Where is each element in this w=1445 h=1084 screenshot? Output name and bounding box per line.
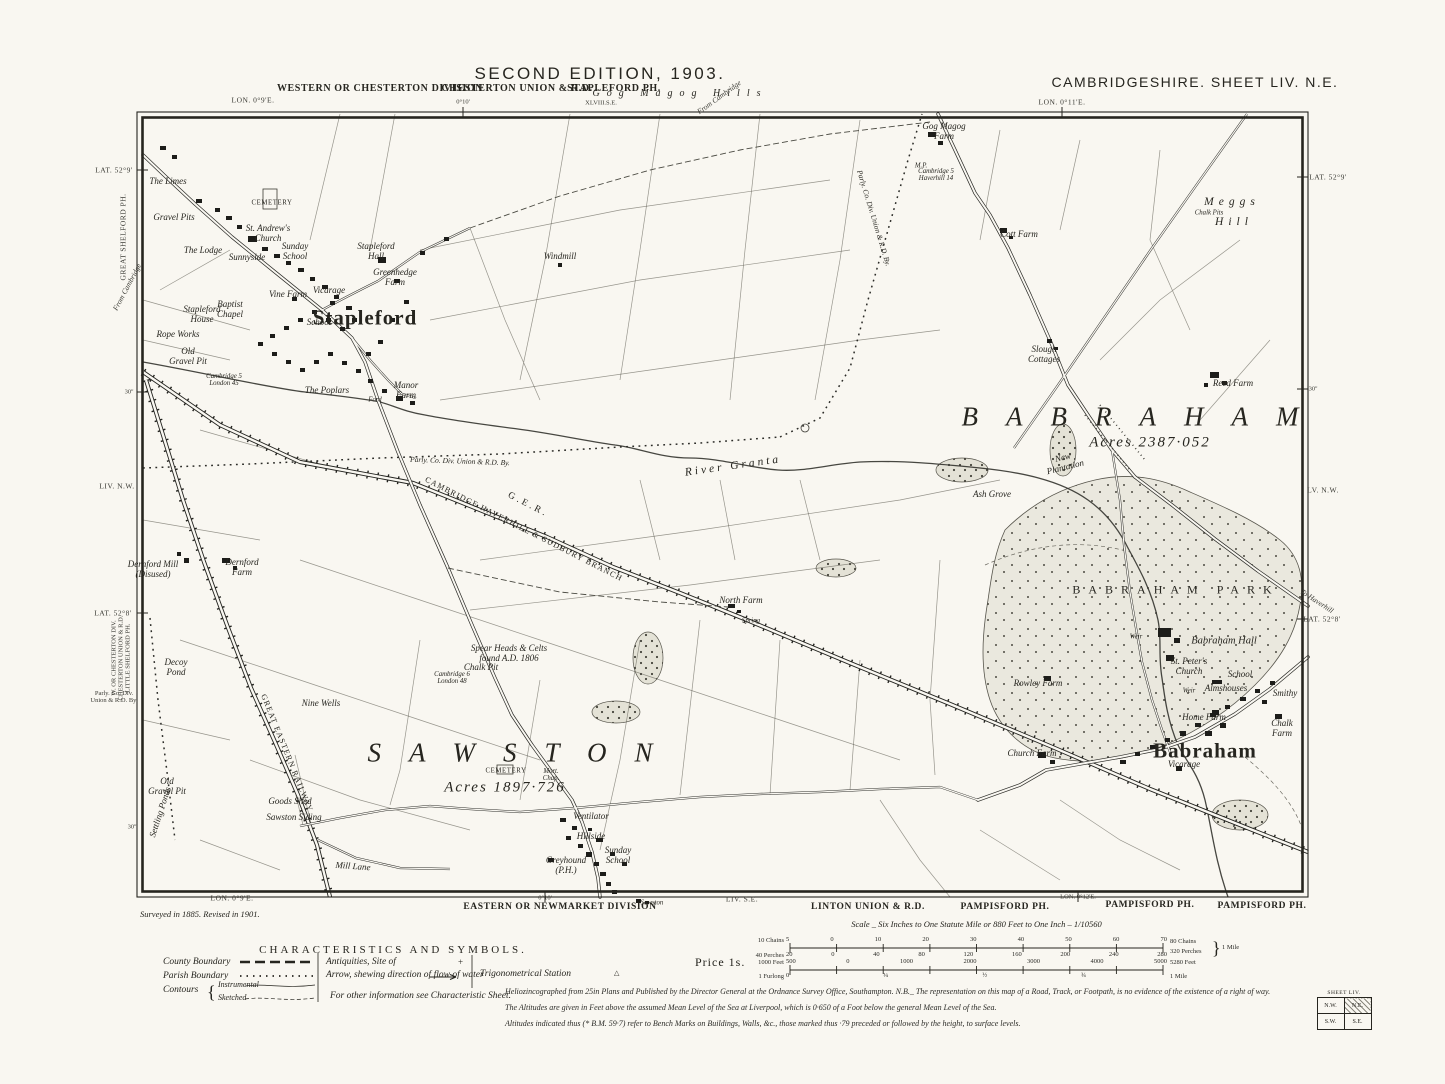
legend-title: CHARACTERISTICS AND SYMBOLS.: [259, 944, 527, 956]
scale-furlong-label: 1 Furlong: [700, 973, 784, 980]
scale-number: 120: [964, 951, 974, 958]
cemetery-plot: [263, 189, 277, 209]
scale-number: 5000: [1154, 958, 1167, 965]
cemetery-plot: [497, 765, 513, 774]
map-canvas: [0, 0, 1445, 1084]
legend-arrow: Arrow, shewing direction of flow of wate…: [326, 970, 484, 980]
imprint-line2: The Altitudes are given in Feet above th…: [505, 1000, 1323, 1016]
scale-furlong-numbers: 0¼½¾: [786, 972, 1086, 979]
index-sw: S.W.: [1317, 1014, 1344, 1030]
scale-number: 60: [1113, 936, 1120, 943]
scale-perches-numbers: 2004080120160200240280: [786, 951, 1167, 958]
scale-number: 500: [786, 958, 796, 965]
scale-number: 30: [970, 936, 977, 943]
legend-contours: Contours: [163, 985, 198, 995]
scale-number: 0: [830, 936, 833, 943]
scale-number: 0: [786, 972, 789, 979]
imprint-line3: Altitudes indicated thus (* B.M. 59·7) r…: [505, 1016, 1323, 1032]
contours-brace: {: [207, 982, 216, 1003]
scale-number: ¼: [883, 972, 888, 979]
index-ne: N.E.: [1344, 998, 1371, 1014]
scale-chains-numbers: 5010203040506070: [786, 936, 1167, 943]
scale-number: 50: [1065, 936, 1072, 943]
legend-other-info: For other information see Characteristic…: [330, 991, 511, 1001]
scale-title: Scale _ Six Inches to One Statute Mile o…: [790, 919, 1163, 929]
scale-number: 70: [1161, 936, 1168, 943]
legend-trig: Trigonometrical Station: [480, 969, 571, 979]
scale-number: ¾: [1081, 972, 1086, 979]
scale-perches-label: 40 Perches: [700, 952, 784, 959]
survey-note: Surveyed in 1885. Revised in 1901.: [140, 909, 260, 919]
scale-number: 5: [786, 936, 789, 943]
scale-furlong-right: 1 Mile: [1170, 973, 1187, 980]
scale-number: 160: [1012, 951, 1022, 958]
imprint-block: Heliozincographed from 25in Plans and Pu…: [505, 984, 1323, 1032]
scale-number: 240: [1109, 951, 1119, 958]
scale-number: 0: [831, 951, 834, 958]
park-woods-layer: [592, 424, 1302, 830]
sheet-index-diagram: SHEET LIV. N.W. N.E. S.W. S.E.: [1316, 990, 1372, 1030]
os-map-sheet: SECOND EDITION, 1903. CAMBRIDGESHIRE. SH…: [0, 0, 1445, 1084]
scale-number: 0: [846, 958, 849, 965]
scale-feet-numbers: 500010002000300040005000: [786, 958, 1167, 965]
legend-county: County Boundary: [163, 957, 230, 967]
scale-mile-label: 1 Mile: [1222, 944, 1239, 951]
trig-triangle-icon: △: [614, 969, 619, 977]
index-grid: N.W. N.E. S.W. S.E.: [1317, 997, 1372, 1030]
imprint-line1: Heliozincographed from 25in Plans and Pu…: [505, 984, 1323, 1000]
scale-feet-label: 1000 Feet: [700, 959, 784, 966]
index-se: S.E.: [1344, 1014, 1371, 1030]
antiquities-cross-icon: +: [458, 957, 463, 967]
scale-number: ½: [982, 972, 987, 979]
boundary-layer: [143, 114, 922, 840]
index-nw: N.W.: [1317, 998, 1344, 1014]
scale-number: 40: [873, 951, 880, 958]
scale-number: 40: [1018, 936, 1025, 943]
pond: [801, 424, 809, 432]
scale-number: 10: [875, 936, 882, 943]
legend-instrumental: Instrumental: [218, 980, 259, 989]
legend-antiquities: Antiquities, Site of: [326, 957, 396, 967]
scale-number: 1000: [900, 958, 913, 965]
mile-brace: }: [1212, 938, 1221, 959]
scale-chains-right: 80 Chains320 Perches: [1170, 937, 1202, 957]
legend-sketched: Sketched: [218, 993, 246, 1002]
index-caption: SHEET LIV.: [1316, 990, 1372, 996]
scale-chains-label: 10 Chains: [700, 937, 784, 944]
scale-number: 3000: [1027, 958, 1040, 965]
scale-number: 200: [1060, 951, 1070, 958]
scale-number: 280: [1157, 951, 1167, 958]
scale-number: 80: [918, 951, 925, 958]
scale-number: 20: [922, 936, 929, 943]
scale-number: 4000: [1091, 958, 1104, 965]
scale-number: 20: [786, 951, 793, 958]
scale-number: 2000: [964, 958, 977, 965]
scale-feet-total: 5280 Feet: [1170, 959, 1196, 966]
